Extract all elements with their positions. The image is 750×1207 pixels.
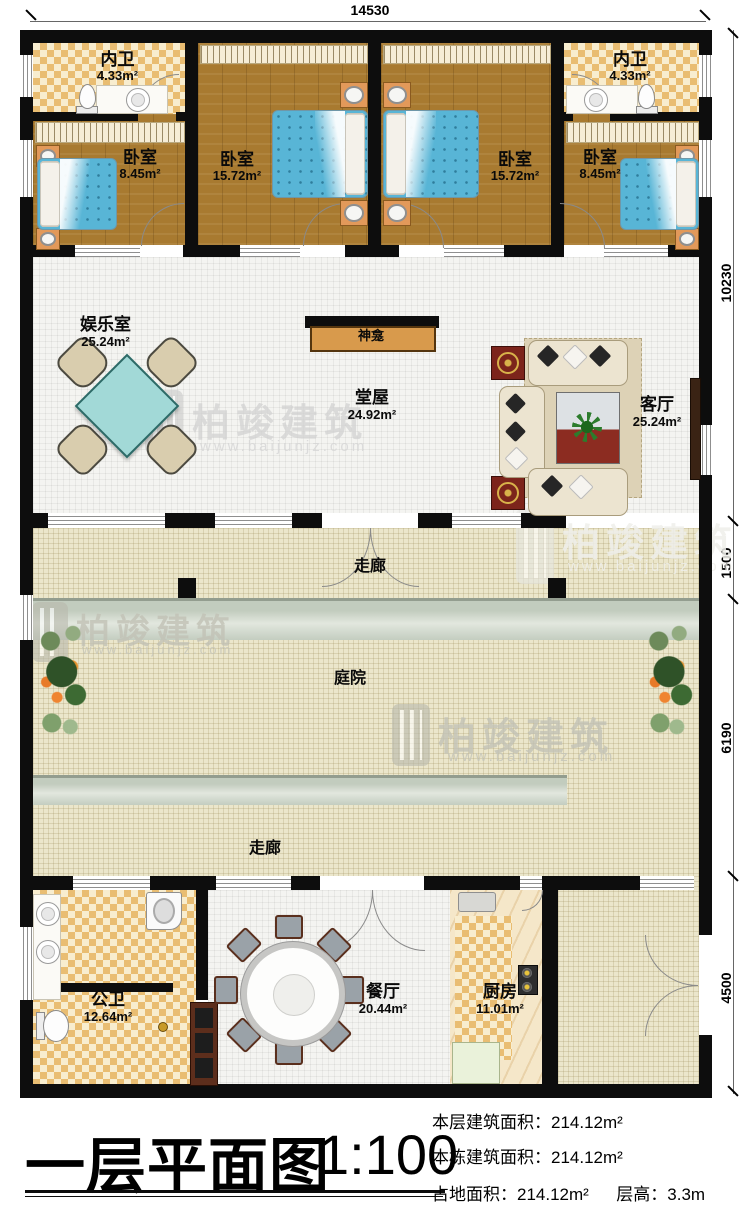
room-area: 4.33m² xyxy=(575,69,685,84)
room-area: 8.45m² xyxy=(105,167,175,182)
sink xyxy=(126,88,150,112)
wall-interior xyxy=(292,513,322,528)
room-label: 餐厅 xyxy=(333,982,433,1001)
window xyxy=(215,513,292,528)
room-area: 4.33m² xyxy=(60,69,175,84)
bed xyxy=(272,110,368,198)
stat-value: 214.12m² xyxy=(517,1185,589,1204)
stat-label: 层高： xyxy=(616,1185,667,1204)
window xyxy=(75,245,140,257)
room-area: 25.24m² xyxy=(48,335,163,350)
watermark-logo xyxy=(392,704,430,766)
wall-interior xyxy=(418,513,452,528)
door-opening xyxy=(322,513,418,528)
floor-plan-page: 14530 10230 1500 6190 4500 柏竣建筑 www.baij… xyxy=(0,0,750,1207)
window xyxy=(20,927,33,1000)
entry-door-opening xyxy=(699,935,712,1035)
plant-icon xyxy=(572,412,602,442)
corridor-top-label: 走廊 xyxy=(330,558,410,576)
door-opening xyxy=(520,876,542,890)
corridor-bottom-label: 走廊 xyxy=(225,840,305,858)
title-underline xyxy=(25,1196,443,1197)
room-area: 24.92m² xyxy=(322,408,422,423)
window xyxy=(640,876,694,890)
nightstand xyxy=(36,228,60,250)
watermark-url: www.baijunjz.com xyxy=(448,748,615,765)
stat-value: 214.12m² xyxy=(551,1113,623,1132)
wall-interior xyxy=(504,245,560,257)
kitchen-sink xyxy=(458,892,496,912)
room-label: 卧室 xyxy=(480,150,550,169)
courtyard-floor xyxy=(33,528,699,876)
wardrobe xyxy=(566,122,699,143)
window xyxy=(699,55,712,97)
wall-interior xyxy=(150,876,216,890)
kitchen-island xyxy=(452,1042,500,1084)
room-area: 25.24m² xyxy=(608,415,706,430)
room-label: 客厅 xyxy=(608,395,706,414)
room-area: 15.72m² xyxy=(202,169,272,184)
wall-interior xyxy=(185,30,198,257)
toilet xyxy=(79,84,96,109)
washing-machine xyxy=(146,892,182,930)
window xyxy=(20,140,33,197)
dimension-tick xyxy=(699,9,710,20)
nightstand xyxy=(383,200,411,226)
watermark-url: www.baijunjz.com xyxy=(200,438,367,455)
wall-interior xyxy=(33,513,48,528)
side-table xyxy=(491,476,525,510)
window xyxy=(240,245,300,257)
wall-interior xyxy=(291,876,320,890)
pillar xyxy=(178,578,196,598)
stat-line: 占地面积：214.12m² 层高：3.3m xyxy=(432,1180,705,1205)
room-label: 卧室 xyxy=(202,150,272,169)
wardrobe xyxy=(200,45,368,64)
toilet xyxy=(638,84,655,109)
room-label: 卧室 xyxy=(105,148,175,167)
wall-interior xyxy=(176,112,185,121)
wall-interior xyxy=(368,30,381,257)
dining-chair xyxy=(214,976,238,1004)
room-label: 内卫 xyxy=(60,50,175,69)
dimension-right-label: 10230 xyxy=(718,253,734,313)
wall-interior xyxy=(165,513,215,528)
dimension-right-label: 6190 xyxy=(718,712,734,764)
room-label: 堂屋 xyxy=(322,388,422,407)
wall-interior xyxy=(542,876,640,890)
stat-label: 占地面积： xyxy=(432,1185,517,1204)
nightstand xyxy=(340,82,368,108)
dimension-top-label: 14530 xyxy=(332,2,408,18)
wall-interior xyxy=(424,876,520,890)
window xyxy=(20,55,33,97)
room-area: 15.72m² xyxy=(480,169,550,184)
wall-interior xyxy=(33,876,73,890)
stat-label: 本层建筑面积： xyxy=(432,1113,551,1132)
dimension-top-line xyxy=(30,21,706,22)
room-area: 11.01m² xyxy=(452,1002,548,1017)
shrine-label: 神龛 xyxy=(310,329,432,344)
courtyard-path-bottom xyxy=(33,775,567,805)
stat-line: 本层建筑面积：214.12m² xyxy=(432,1108,623,1133)
bed xyxy=(383,110,479,198)
wall-interior xyxy=(183,245,240,257)
wall-outer-bottom xyxy=(20,1084,712,1098)
nightstand xyxy=(340,200,368,226)
wall-outer-top xyxy=(20,30,712,43)
plant xyxy=(32,618,98,746)
title-underline xyxy=(25,1190,445,1193)
room-label: 娱乐室 xyxy=(48,315,163,334)
room-area: 12.64m² xyxy=(58,1010,158,1025)
stat-value: 3.3m xyxy=(667,1185,705,1204)
room-area: 20.44m² xyxy=(333,1002,433,1017)
window xyxy=(216,876,291,890)
room-label: 内卫 xyxy=(575,50,685,69)
nightstand xyxy=(675,228,699,250)
room-label: 公卫 xyxy=(58,990,158,1009)
window xyxy=(452,513,521,528)
plant xyxy=(642,618,702,746)
stat-label: 本栋建筑面积： xyxy=(432,1148,551,1167)
stat-line: 本栋建筑面积：214.12m² xyxy=(432,1143,623,1168)
dimension-right-label: 4500 xyxy=(718,962,734,1014)
stat-value: 214.12m² xyxy=(551,1148,623,1167)
courtyard-label: 庭院 xyxy=(310,670,390,688)
dining-table xyxy=(241,942,345,1046)
window xyxy=(604,245,668,257)
window xyxy=(73,876,150,890)
window xyxy=(444,245,504,257)
door-handle xyxy=(158,1022,168,1032)
dimension-tick xyxy=(25,9,36,20)
window xyxy=(48,513,165,528)
sink xyxy=(36,902,60,926)
side-table xyxy=(491,346,525,380)
dining-chair xyxy=(275,915,303,939)
pillar xyxy=(548,578,566,598)
door-opening xyxy=(320,876,424,890)
window xyxy=(699,140,712,197)
room-label: 卧室 xyxy=(565,148,635,167)
sink xyxy=(36,940,60,964)
sink xyxy=(584,88,608,112)
room-label: 厨房 xyxy=(452,982,548,1001)
wall-interior xyxy=(345,245,399,257)
sideboard-cabinet xyxy=(190,1002,218,1086)
wardrobe xyxy=(383,45,551,64)
wall-interior xyxy=(196,890,208,1000)
nightstand xyxy=(383,82,411,108)
wardrobe xyxy=(35,122,185,143)
room-area: 8.45m² xyxy=(565,167,635,182)
watermark-url: www.baijunjz.com xyxy=(82,642,233,657)
